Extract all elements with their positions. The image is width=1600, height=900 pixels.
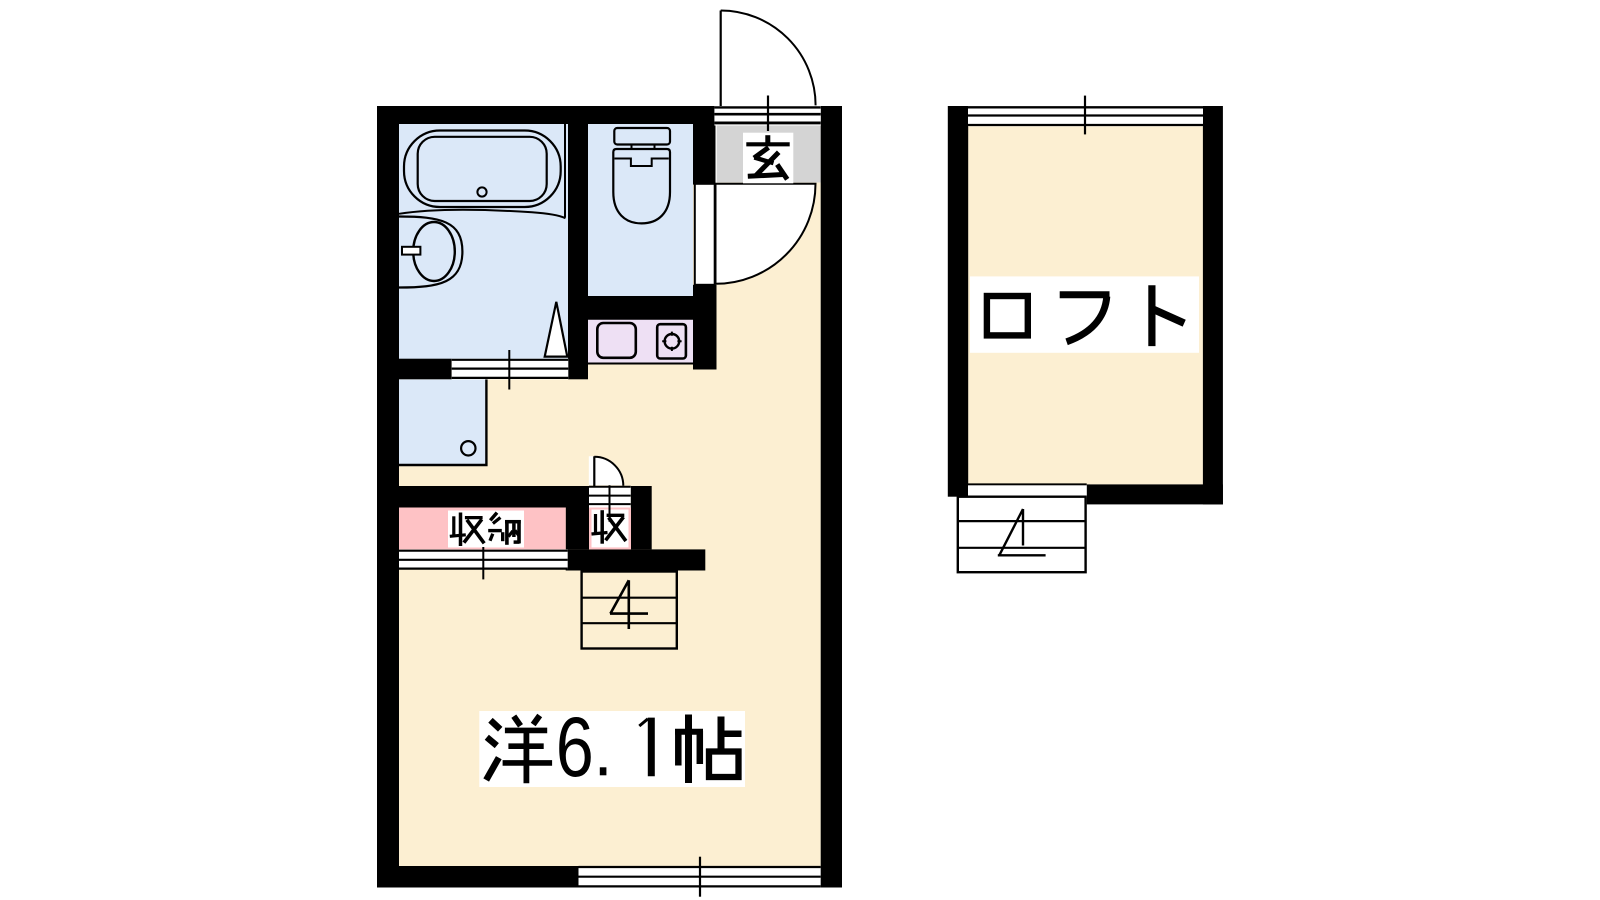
svg-text:6: 6 (556, 701, 594, 794)
